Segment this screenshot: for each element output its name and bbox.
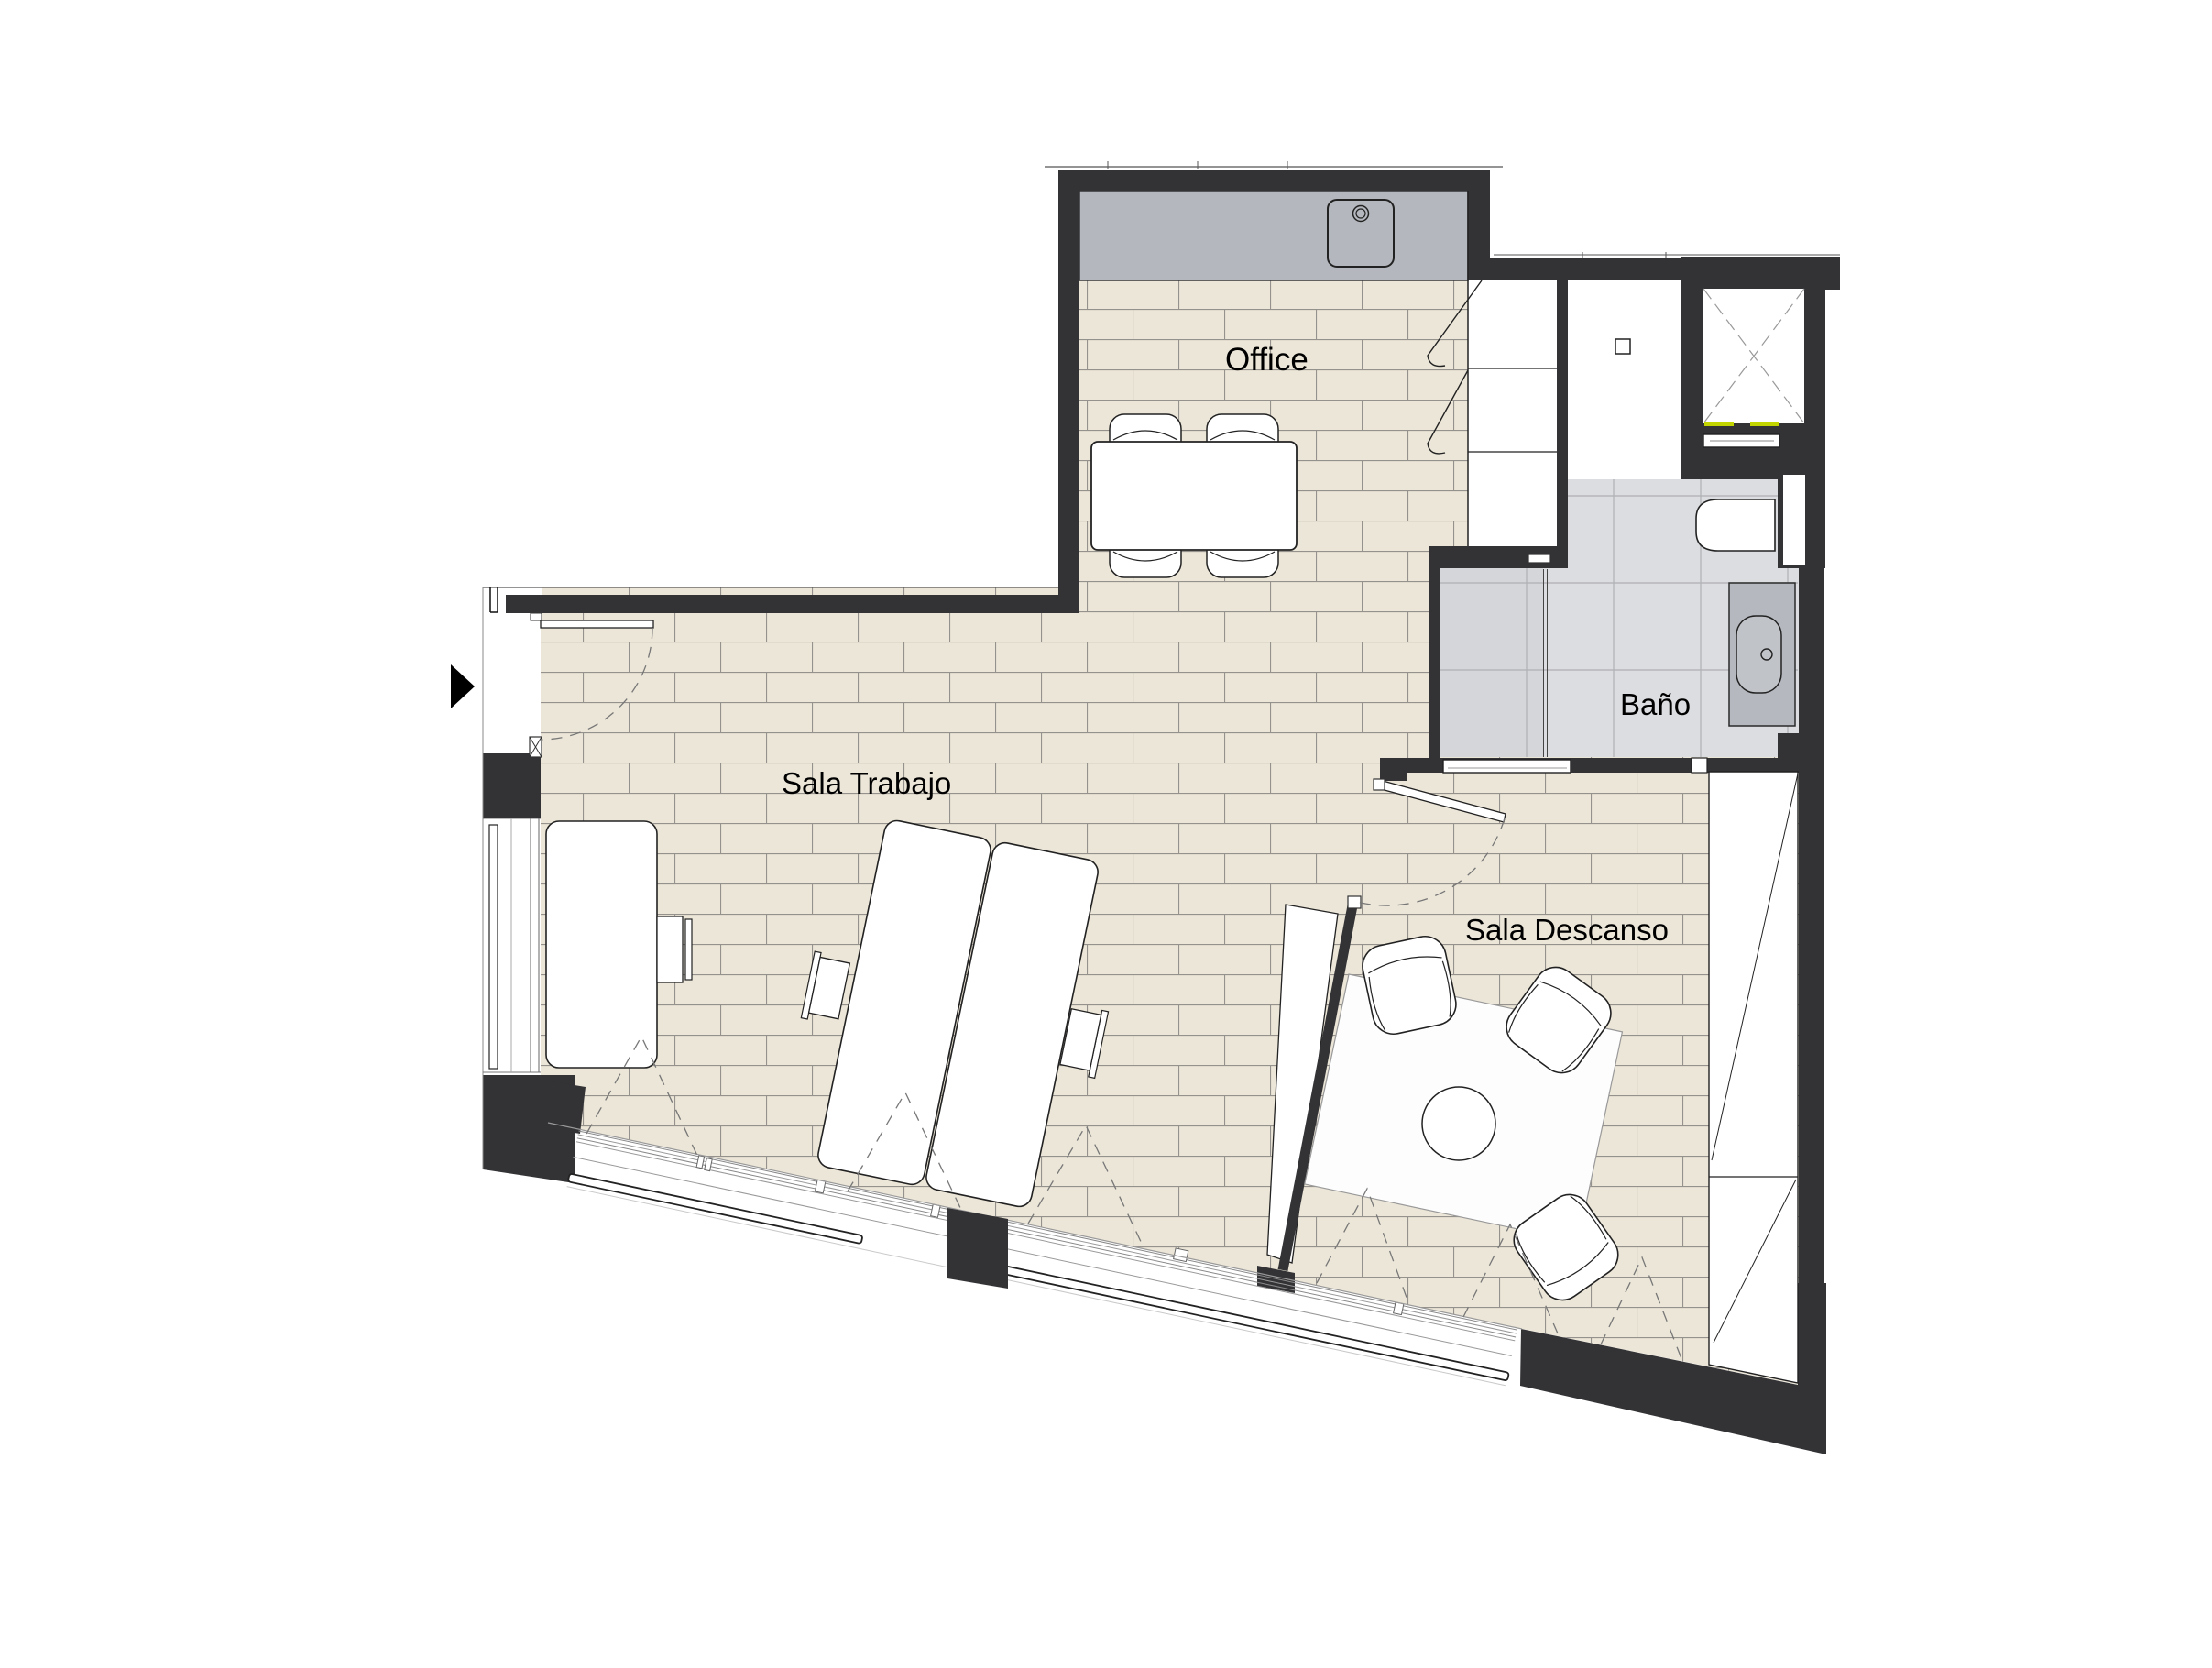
svg-text:Sala Descanso: Sala Descanso	[1465, 913, 1669, 947]
svg-text:Baño: Baño	[1620, 687, 1691, 721]
svg-text:Office: Office	[1225, 342, 1309, 378]
svg-text:Sala Trabajo: Sala Trabajo	[782, 766, 951, 800]
